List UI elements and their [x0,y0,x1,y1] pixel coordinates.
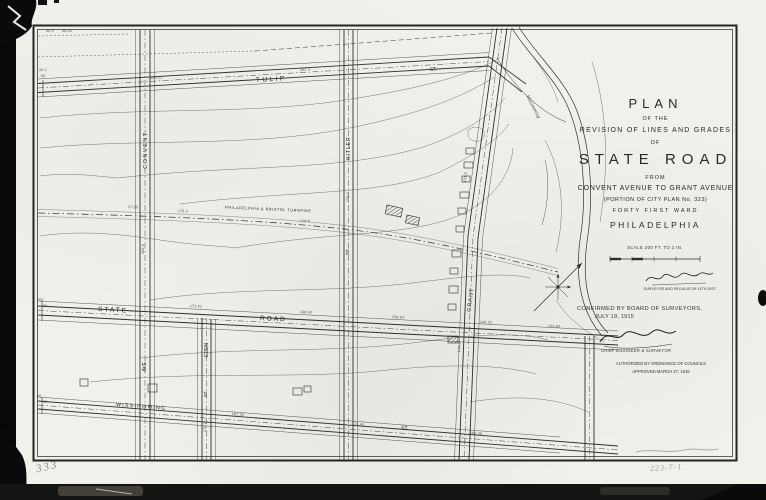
scan-mark-top [38,0,47,5]
scan-mark-top-2 [54,0,59,3]
pencil-squiggle [636,449,718,452]
scan-blob-top-left [0,0,36,46]
scan-streak-1 [58,486,143,496]
scan-notch-right [758,290,766,306]
scanned-map-page: Wissinoming PHILADELPHIA & BRISTOL TURNP… [0,0,766,500]
scan-artifacts [0,0,766,500]
scan-edge-left [0,0,16,500]
scan-streak-2 [600,487,670,495]
